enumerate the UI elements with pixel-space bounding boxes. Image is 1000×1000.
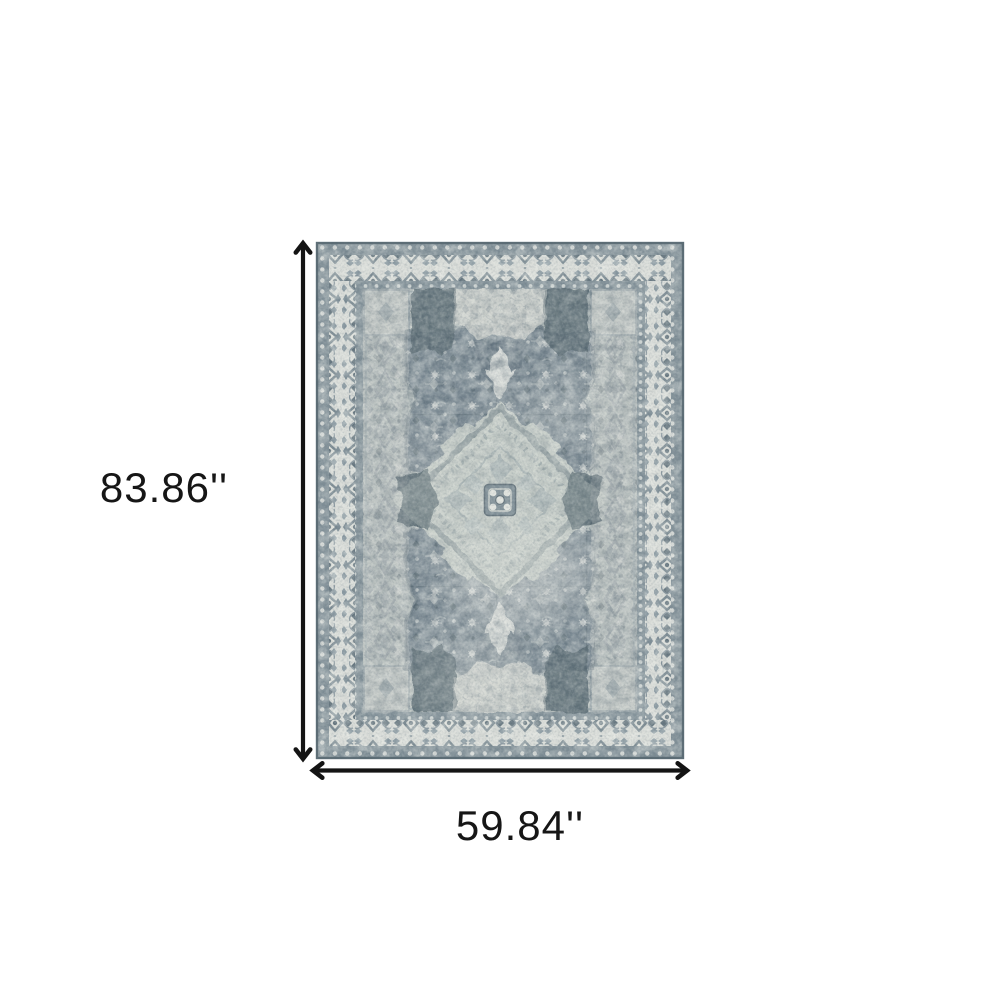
- svg-text:83.86'': 83.86'': [100, 464, 228, 511]
- svg-text:59.84'': 59.84'': [456, 802, 584, 849]
